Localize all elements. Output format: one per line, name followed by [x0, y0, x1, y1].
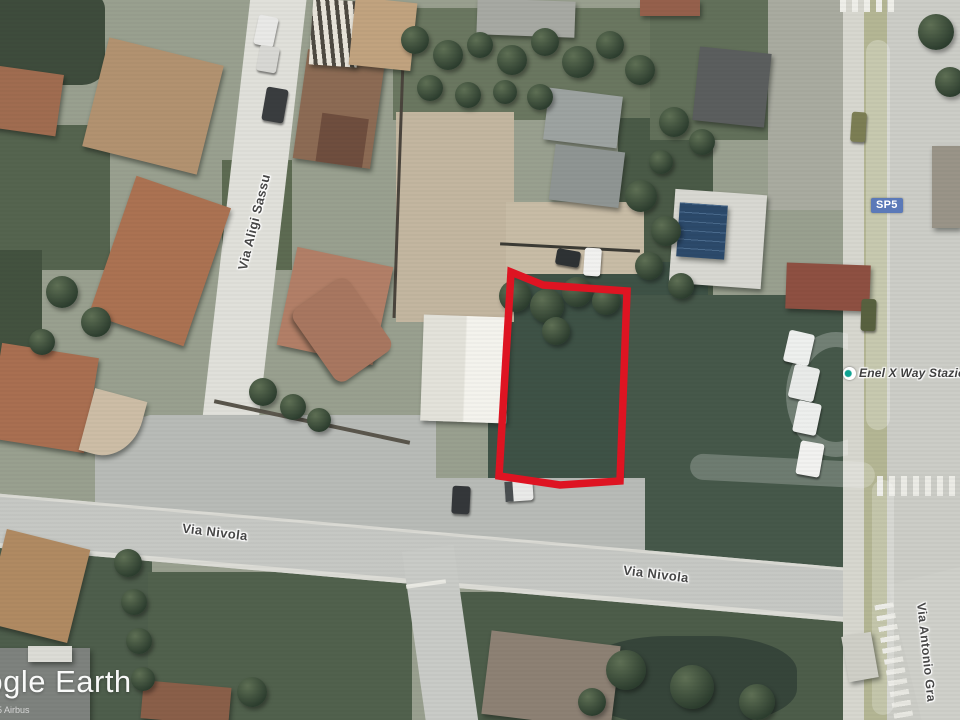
- parcel-outline[interactable]: [499, 272, 627, 485]
- imagery-attribution: 5 Airbus: [0, 705, 30, 715]
- parcel-outline-layer: [0, 0, 960, 720]
- route-badge-sp5: SP5: [871, 198, 903, 213]
- poi-enel-charging-station[interactable]: Enel X Way Stazio: [843, 366, 960, 380]
- satellite-map-canvas[interactable]: Via Aligi Sassu Via Nivola Via Nivola Vi…: [0, 0, 960, 720]
- ev-charger-icon: [843, 367, 856, 380]
- google-earth-watermark: Google Earth: [0, 664, 132, 700]
- poi-label: Enel X Way Stazio: [859, 366, 960, 380]
